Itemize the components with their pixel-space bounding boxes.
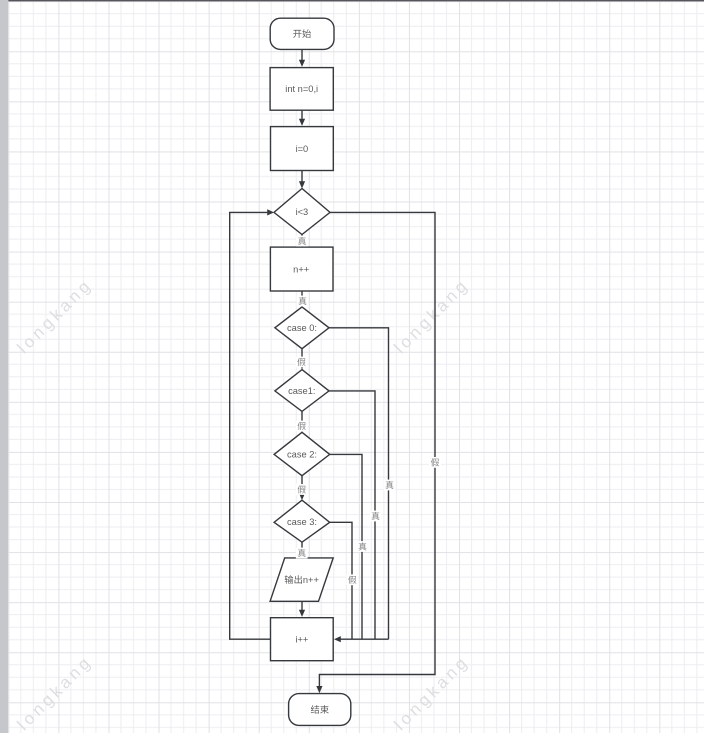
svg-text:case 3:: case 3: [287,517,317,527]
svg-text:n++: n++ [303,575,319,585]
svg-text:i=0: i=0 [296,144,309,154]
svg-text:n++: n++ [293,264,309,274]
svg-text:case 2:: case 2: [287,450,317,460]
svg-text:i<3: i<3 [296,207,309,217]
svg-text:int n=0,i: int n=0,i [285,84,318,94]
svg-text:case1:: case1: [288,386,315,396]
svg-text:i++: i++ [295,635,308,645]
svg-text:case 0:: case 0: [287,323,317,333]
